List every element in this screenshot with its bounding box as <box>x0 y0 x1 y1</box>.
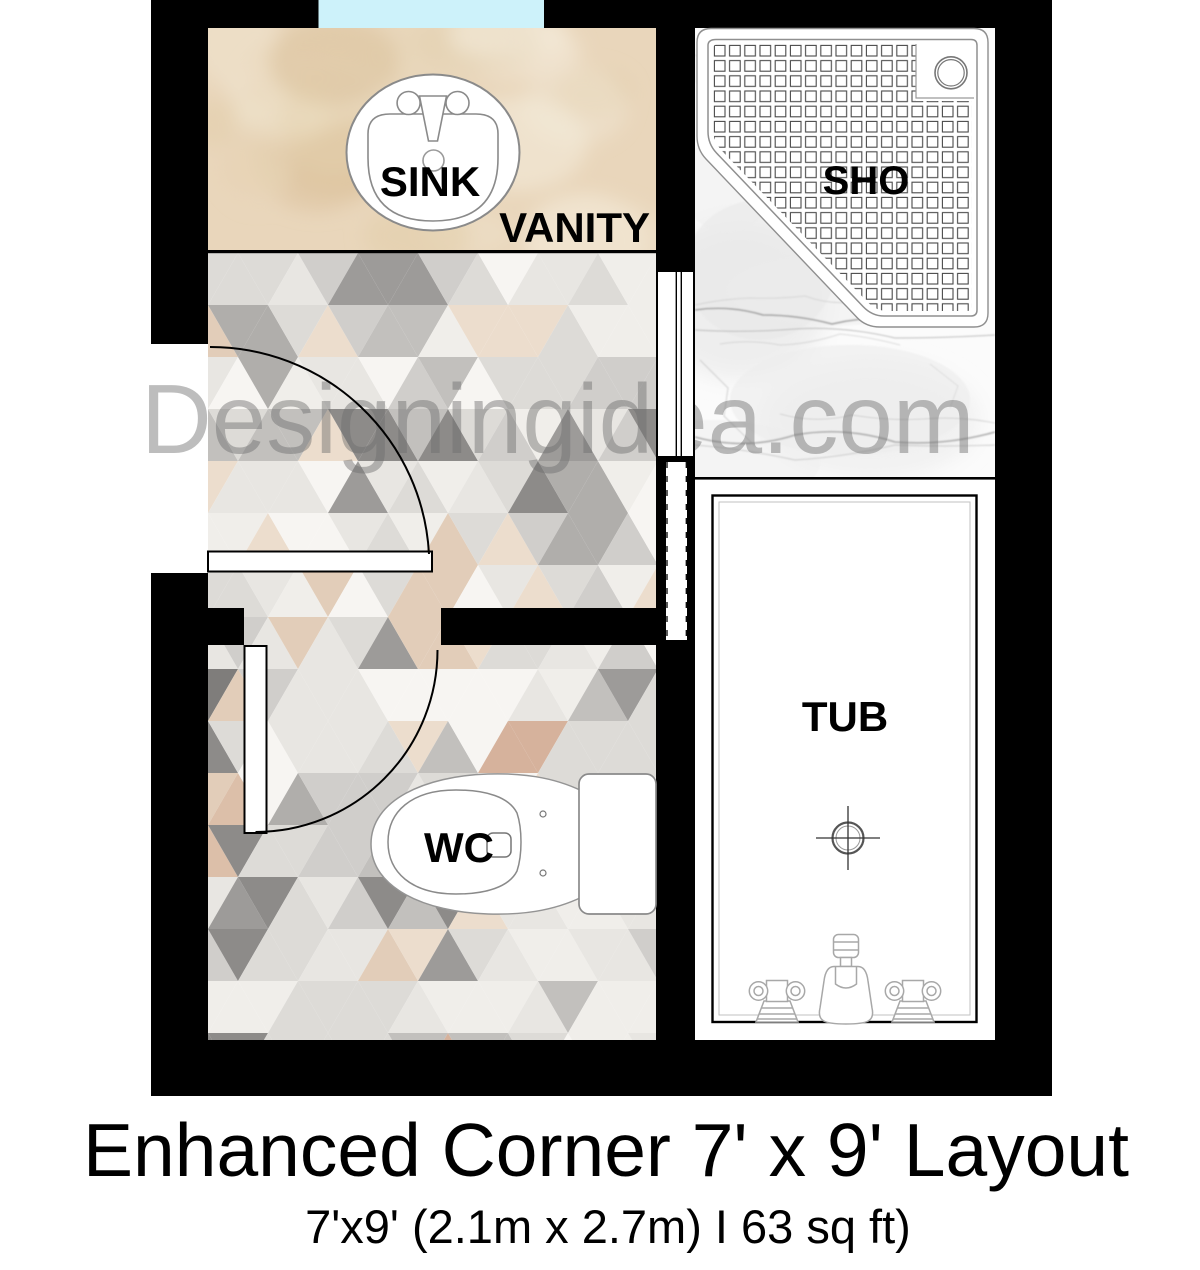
svg-text:TUB: TUB <box>802 693 888 740</box>
svg-text:7'x9' (2.1m x 2.7m) I 63 sq ft: 7'x9' (2.1m x 2.7m) I 63 sq ft) <box>305 1200 911 1253</box>
svg-text:WC: WC <box>424 824 494 871</box>
svg-text:Enhanced Corner 7' x 9' Layout: Enhanced Corner 7' x 9' Layout <box>83 1108 1129 1192</box>
svg-text:SINK: SINK <box>380 158 480 205</box>
svg-text:VANITY: VANITY <box>499 204 650 251</box>
svg-text:Designingidea.com: Designingidea.com <box>141 364 974 474</box>
svg-text:SHO: SHO <box>823 159 910 203</box>
